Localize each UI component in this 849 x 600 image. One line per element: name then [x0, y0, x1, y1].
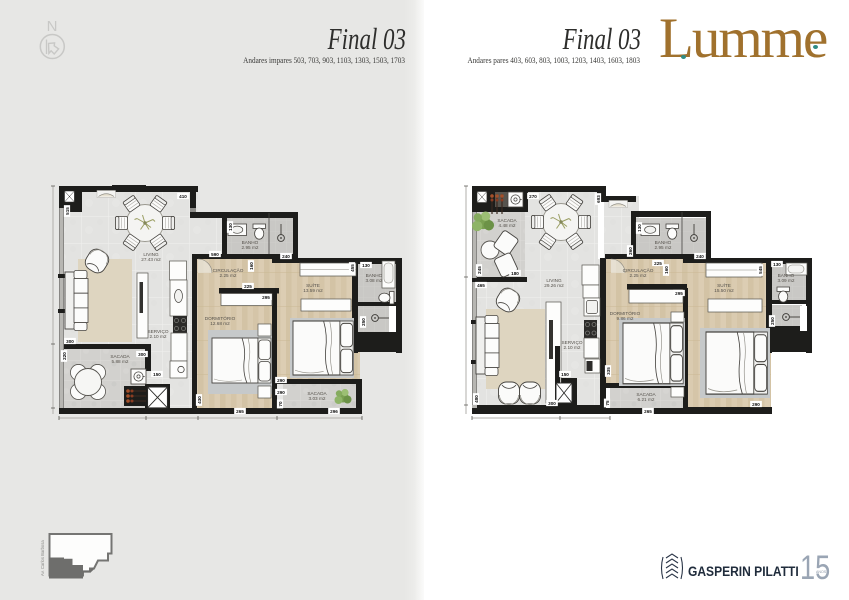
svg-text:250: 250: [770, 317, 775, 325]
svg-text:70: 70: [278, 401, 283, 407]
svg-text:160: 160: [664, 266, 669, 274]
svg-text:75: 75: [605, 400, 610, 406]
svg-text:160: 160: [249, 262, 254, 270]
svg-text:2.25 m2: 2.25 m2: [630, 273, 647, 278]
svg-text:455: 455: [350, 264, 355, 272]
svg-text:290: 290: [752, 402, 760, 407]
svg-text:290: 290: [277, 390, 285, 395]
svg-text:250: 250: [361, 318, 366, 326]
svg-text:335: 335: [606, 367, 611, 375]
svg-text:225: 225: [654, 261, 662, 266]
svg-text:220: 220: [62, 352, 67, 360]
svg-text:295: 295: [675, 291, 683, 296]
svg-text:2.95 m2: 2.95 m2: [655, 245, 672, 250]
svg-text:515: 515: [65, 207, 70, 215]
svg-text:29.26 m2: 29.26 m2: [544, 283, 564, 288]
svg-text:430: 430: [197, 396, 202, 404]
svg-text:N: N: [47, 18, 58, 35]
svg-text:300: 300: [138, 352, 146, 357]
svg-text:150: 150: [561, 372, 569, 377]
svg-text:2.10 m2: 2.10 m2: [564, 345, 581, 350]
svg-text:2.25 m2: 2.25 m2: [220, 273, 237, 278]
svg-text:296: 296: [330, 409, 338, 414]
svg-text:GASPERIN PILATTI: GASPERIN PILATTI: [688, 563, 799, 579]
svg-text:3.09 m2: 3.09 m2: [778, 278, 795, 283]
svg-text:Av. Carlos Barbosa: Av. Carlos Barbosa: [40, 540, 45, 576]
svg-text:130: 130: [362, 263, 370, 268]
svg-text:240: 240: [282, 254, 290, 259]
svg-text:15: 15: [800, 548, 830, 587]
svg-text:27.43 m2: 27.43 m2: [141, 257, 161, 262]
svg-text:225: 225: [244, 284, 252, 289]
svg-text:3.03 m2: 3.03 m2: [309, 396, 326, 401]
svg-text:290: 290: [277, 378, 285, 383]
svg-text:270: 270: [529, 194, 537, 199]
svg-text:2.10 m2: 2.10 m2: [150, 334, 167, 339]
svg-text:6.21 m2: 6.21 m2: [638, 397, 655, 402]
svg-text:150: 150: [153, 372, 161, 377]
svg-text:265: 265: [644, 409, 652, 414]
svg-text:15.50 m2: 15.50 m2: [714, 288, 734, 293]
svg-text:ANOS: ANOS: [816, 570, 827, 574]
svg-text:300: 300: [66, 339, 74, 344]
svg-text:13.59 m2: 13.59 m2: [303, 288, 323, 293]
svg-text:180: 180: [511, 271, 519, 276]
svg-text:240: 240: [696, 254, 704, 259]
svg-text:410: 410: [179, 194, 187, 199]
svg-text:693: 693: [596, 195, 601, 203]
svg-text:130: 130: [228, 223, 233, 231]
svg-text:130: 130: [773, 262, 781, 267]
svg-text:480: 480: [474, 395, 479, 403]
svg-text:9.86 m2: 9.86 m2: [617, 316, 634, 321]
svg-text:2.95 m2: 2.95 m2: [242, 245, 259, 250]
svg-text:5.88 m2: 5.88 m2: [112, 359, 129, 364]
svg-text:295: 295: [262, 295, 270, 300]
svg-text:130: 130: [637, 224, 642, 232]
svg-text:4.48 m2: 4.48 m2: [499, 223, 516, 228]
svg-text:12.68 m2: 12.68 m2: [210, 321, 230, 326]
svg-text:300: 300: [548, 401, 556, 406]
svg-text:590: 590: [211, 252, 219, 257]
svg-text:3.08 m2: 3.08 m2: [366, 278, 383, 283]
svg-text:545: 545: [758, 266, 763, 274]
svg-text:260: 260: [628, 247, 633, 255]
svg-text:245: 245: [477, 266, 482, 274]
svg-text:465: 465: [477, 283, 485, 288]
svg-text:265: 265: [236, 409, 244, 414]
